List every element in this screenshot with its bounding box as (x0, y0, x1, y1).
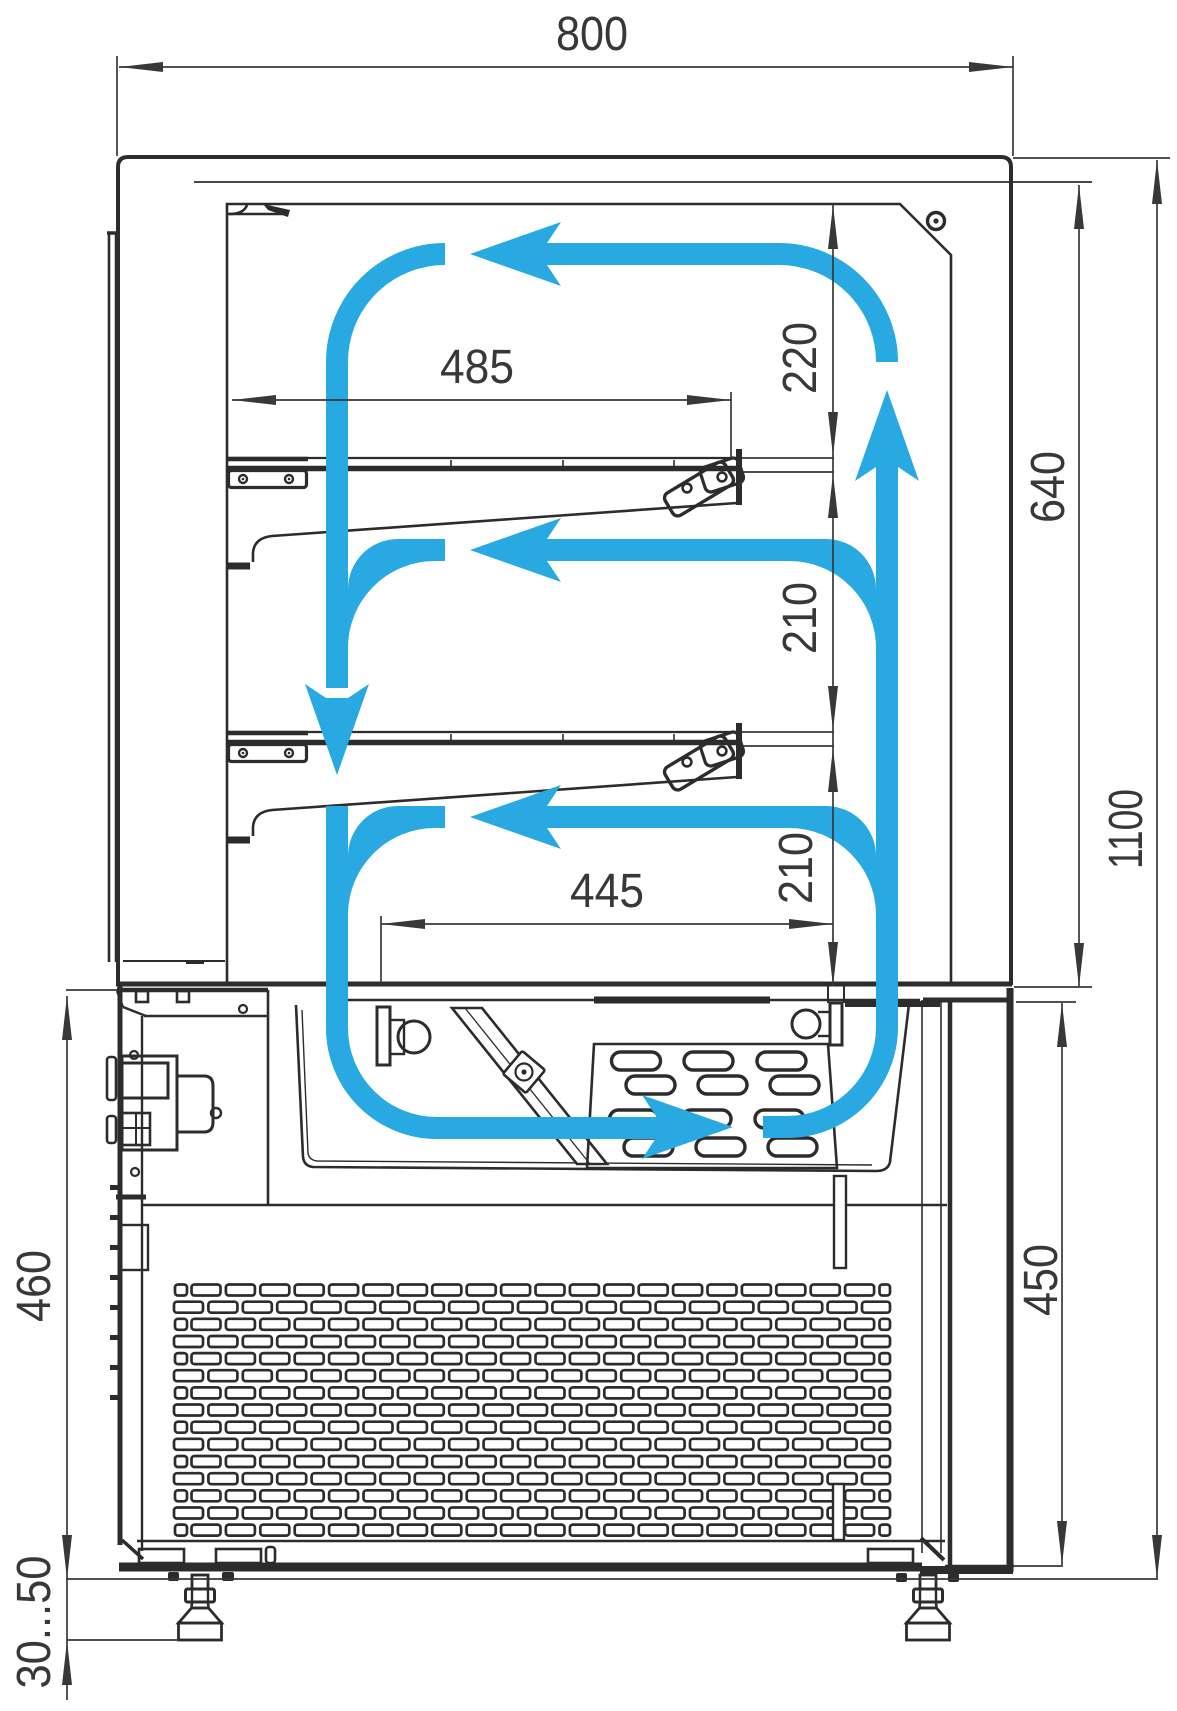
svg-text:640: 640 (1022, 451, 1075, 523)
svg-text:450: 450 (1015, 1244, 1068, 1316)
svg-text:445: 445 (570, 865, 644, 918)
svg-text:485: 485 (440, 341, 514, 394)
svg-text:30...50: 30...50 (8, 1556, 61, 1689)
svg-text:220: 220 (774, 322, 827, 394)
svg-text:800: 800 (556, 8, 628, 61)
svg-text:1100: 1100 (1100, 789, 1153, 869)
svg-text:210: 210 (774, 582, 827, 654)
svg-text:210: 210 (770, 832, 823, 904)
svg-text:460: 460 (8, 1250, 61, 1322)
